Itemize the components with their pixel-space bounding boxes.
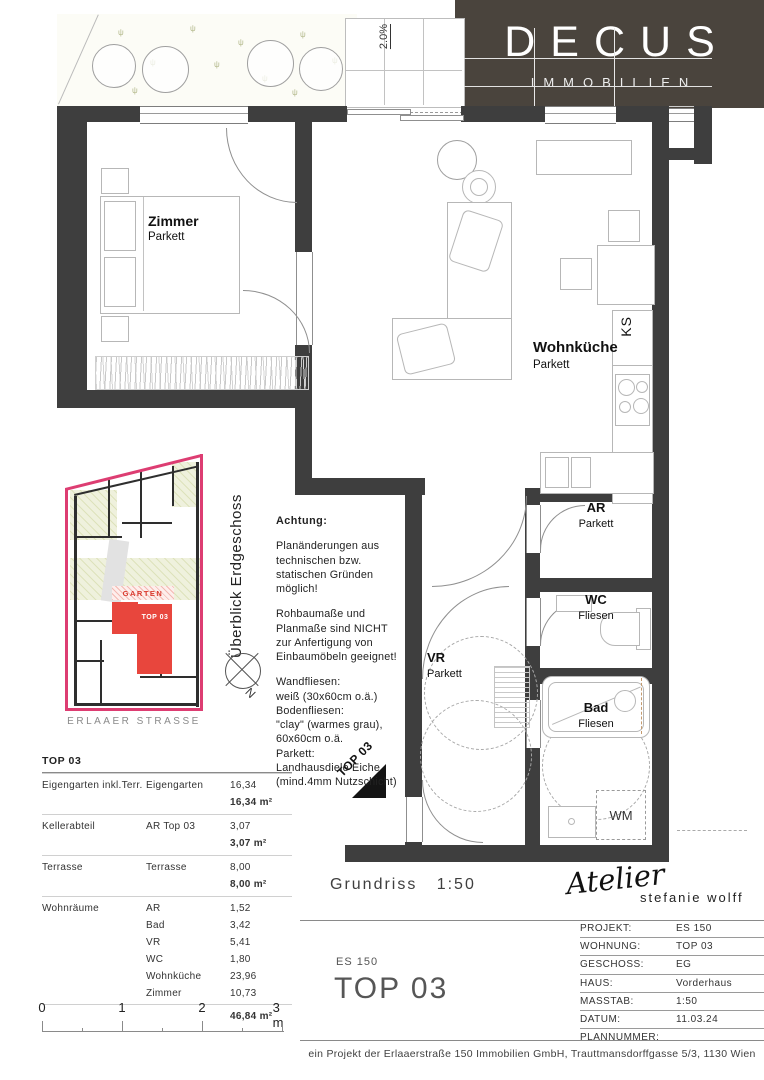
blanket-line: [143, 197, 144, 311]
table-subtotal-row: 16,34 m²: [42, 794, 292, 811]
field-row: HAUS: Vorderhaus: [580, 975, 764, 993]
sliding-door: [400, 115, 464, 121]
scale-label: 0: [38, 1000, 45, 1015]
tree-icon: [247, 40, 294, 87]
nightstand: [101, 316, 129, 342]
window: [669, 108, 694, 122]
cooktop-burner: [636, 381, 648, 393]
unit-title: TOP 03: [334, 972, 448, 1006]
project-footer: ein Projekt der Erlaaerstraße 150 Immobi…: [300, 1048, 764, 1060]
overview-wall: [74, 703, 199, 706]
notes-paragraph: Rohbaumaße und Planmaße sind NICHT zur A…: [276, 607, 408, 664]
table-row: VR 5,41: [42, 934, 292, 951]
scale-tick: [122, 1021, 123, 1032]
bath-sink-drain: [568, 818, 575, 825]
fridge-label: KS: [618, 316, 634, 337]
kitchen-sink: [571, 457, 591, 488]
table-subtotal-row: 8,00 m²: [42, 876, 292, 893]
paving-area: [464, 28, 712, 107]
paving-line: [464, 86, 712, 87]
terrace-grid-line: [346, 70, 462, 71]
room-label-wohnkueche: Wohnküche Parkett: [533, 338, 618, 372]
room-label-zimmer: Zimmer Parkett: [148, 212, 199, 245]
wall: [461, 106, 545, 122]
chair: [560, 258, 592, 290]
scale-bar: 0 1 2 3 m: [40, 1000, 286, 1034]
field-row: DATUM: 11.03.24: [580, 1011, 764, 1029]
door-opening: [406, 797, 423, 842]
grass-icon: ψ: [238, 38, 244, 47]
door-opening: [526, 505, 541, 553]
pillow: [104, 257, 136, 307]
tree-icon: [142, 46, 189, 93]
terrace-grid-line: [423, 19, 424, 105]
overview-wall: [74, 620, 114, 622]
shelf: [494, 666, 530, 728]
overview-wall: [196, 462, 199, 707]
table-subtotal-row: 3,07 m²: [42, 835, 292, 852]
drawing-title: Grundriss 1:50: [330, 876, 476, 894]
titleblock-fields: PROJEKT: ES 150 WOHNUNG: TOP 03 GESCHOSS…: [580, 920, 764, 1046]
overview-wall: [122, 522, 172, 524]
divider-line: [300, 1040, 764, 1041]
notes-paragraph: Wandfliesen: weiß (30x60cm o.ä.) Bodenfl…: [276, 675, 408, 789]
wall: [57, 390, 307, 408]
compass: N: [222, 650, 262, 690]
studio-name: stefanie wolff: [640, 890, 744, 905]
window: [545, 106, 616, 124]
wall: [652, 106, 669, 862]
wall: [57, 106, 87, 408]
notes-block: Achtung: Planänderungen aus technischen …: [276, 514, 408, 800]
reference-dashed-line: [677, 830, 747, 831]
field-row: WOHNUNG: TOP 03: [580, 938, 764, 956]
window: [140, 106, 248, 124]
room-label-vr: VR Parkett: [427, 650, 462, 681]
door-arc: [226, 128, 297, 203]
terrace: [345, 18, 465, 108]
project-code: ES 150: [336, 956, 378, 968]
grass-icon: ψ: [118, 28, 124, 37]
overview-wall: [108, 480, 110, 538]
door-arc: [432, 496, 527, 587]
wall: [295, 478, 425, 495]
area-table-title: TOP 03: [42, 755, 292, 773]
grass-icon: ψ: [300, 30, 306, 39]
street-label: ERLAAER STRASSE: [62, 716, 206, 727]
chair: [608, 210, 640, 242]
field-row: MASSTAB: 1:50: [580, 993, 764, 1011]
wall: [57, 106, 140, 122]
scale-tick: [242, 1028, 243, 1032]
table-row: Wohnräume AR 1,52: [42, 900, 292, 917]
paving-line: [614, 28, 615, 106]
tree-icon: [92, 44, 136, 88]
scale-label: 1: [118, 1000, 125, 1015]
area-group: Terrasse Terrasse 8,00 8,00 m²: [42, 855, 292, 896]
washing-machine: WM: [596, 790, 646, 840]
overview-unit-label: TOP 03: [138, 614, 172, 621]
cooktop-burner: [618, 379, 635, 396]
wardrobe-hatch: [95, 356, 309, 390]
overview-garten-label: GARTEN: [112, 586, 174, 600]
kitchen-sink: [545, 457, 569, 488]
notes-paragraph: Planänderungen aus technischen bzw. stat…: [276, 539, 408, 596]
wall: [295, 122, 312, 252]
table-row: Kellerabteil AR Top 03 3,07: [42, 818, 292, 835]
cooktop-burner: [633, 398, 649, 414]
paving-line: [534, 28, 535, 106]
scale-tick: [202, 1021, 203, 1032]
scale-baseline: [42, 1031, 284, 1032]
table-row: WC 1,80: [42, 951, 292, 968]
overview-wall: [74, 536, 122, 538]
field-row: PLANNUMMER:: [580, 1029, 764, 1046]
scale-tick: [42, 1021, 43, 1032]
area-group: Kellerabteil AR Top 03 3,07 3,07 m²: [42, 814, 292, 855]
grass-icon: ψ: [292, 88, 298, 97]
notes-heading: Achtung:: [276, 514, 408, 528]
table-row: Terrasse Terrasse 8,00: [42, 859, 292, 876]
wall: [525, 578, 667, 592]
field-row: GESCHOSS: EG: [580, 956, 764, 974]
table-row: Wohnküche 23,96: [42, 968, 292, 985]
door-opening: [526, 598, 541, 646]
slope-label: 2.0%: [378, 24, 390, 49]
tree-icon: [299, 47, 343, 91]
table-row: Eigengarten inkl.Terr. Eigengarten 16,34: [42, 777, 292, 794]
overview-title: Überblick Erdgeschoss: [228, 478, 245, 658]
room-label-bad: Bad Fliesen: [550, 700, 642, 731]
overview-unit-highlight: [112, 602, 138, 634]
area-table: TOP 03 Eigengarten inkl.Terr. Eigengarte…: [42, 755, 292, 1028]
sideboard: [536, 140, 632, 175]
wall: [345, 845, 669, 862]
pillow: [104, 201, 136, 251]
overview-wall: [74, 496, 77, 704]
overview-wall: [140, 470, 142, 538]
overview-wall: [140, 676, 198, 678]
grass-icon: ψ: [214, 60, 220, 69]
site-boundary: [200, 454, 203, 710]
grass-icon: ψ: [190, 24, 196, 33]
scale-label: 2: [198, 1000, 205, 1015]
field-row: PROJEKT: ES 150: [580, 920, 764, 938]
wall: [248, 106, 347, 122]
wall: [669, 148, 712, 160]
site-boundary: [65, 708, 203, 711]
area-group: Eigengarten inkl.Terr. Eigengarten 16,34…: [42, 773, 292, 814]
overview-wall: [172, 466, 174, 506]
scale-tick: [82, 1028, 83, 1032]
washer-label: WM: [609, 808, 632, 823]
side-table-inner: [470, 178, 488, 196]
site-boundary: [65, 488, 68, 710]
cooktop-burner: [619, 401, 631, 413]
paving-line: [464, 58, 712, 59]
table-row: Bad 3,42: [42, 917, 292, 934]
grass-icon: ψ: [132, 86, 138, 95]
scale-tick: [162, 1028, 163, 1032]
scale-tick: [282, 1021, 283, 1032]
overview-wall: [100, 640, 102, 703]
nightstand: [101, 168, 129, 194]
dining-table: [597, 245, 655, 305]
room-label-ar: AR Parkett: [540, 500, 652, 531]
room-label-wc: WC Fliesen: [540, 592, 652, 623]
plan-sheet: DECUS IMMOBILIEN ψ ψ ψ ψ ψ ψ ψ ψ ψ ψ 2.0…: [0, 0, 764, 1080]
